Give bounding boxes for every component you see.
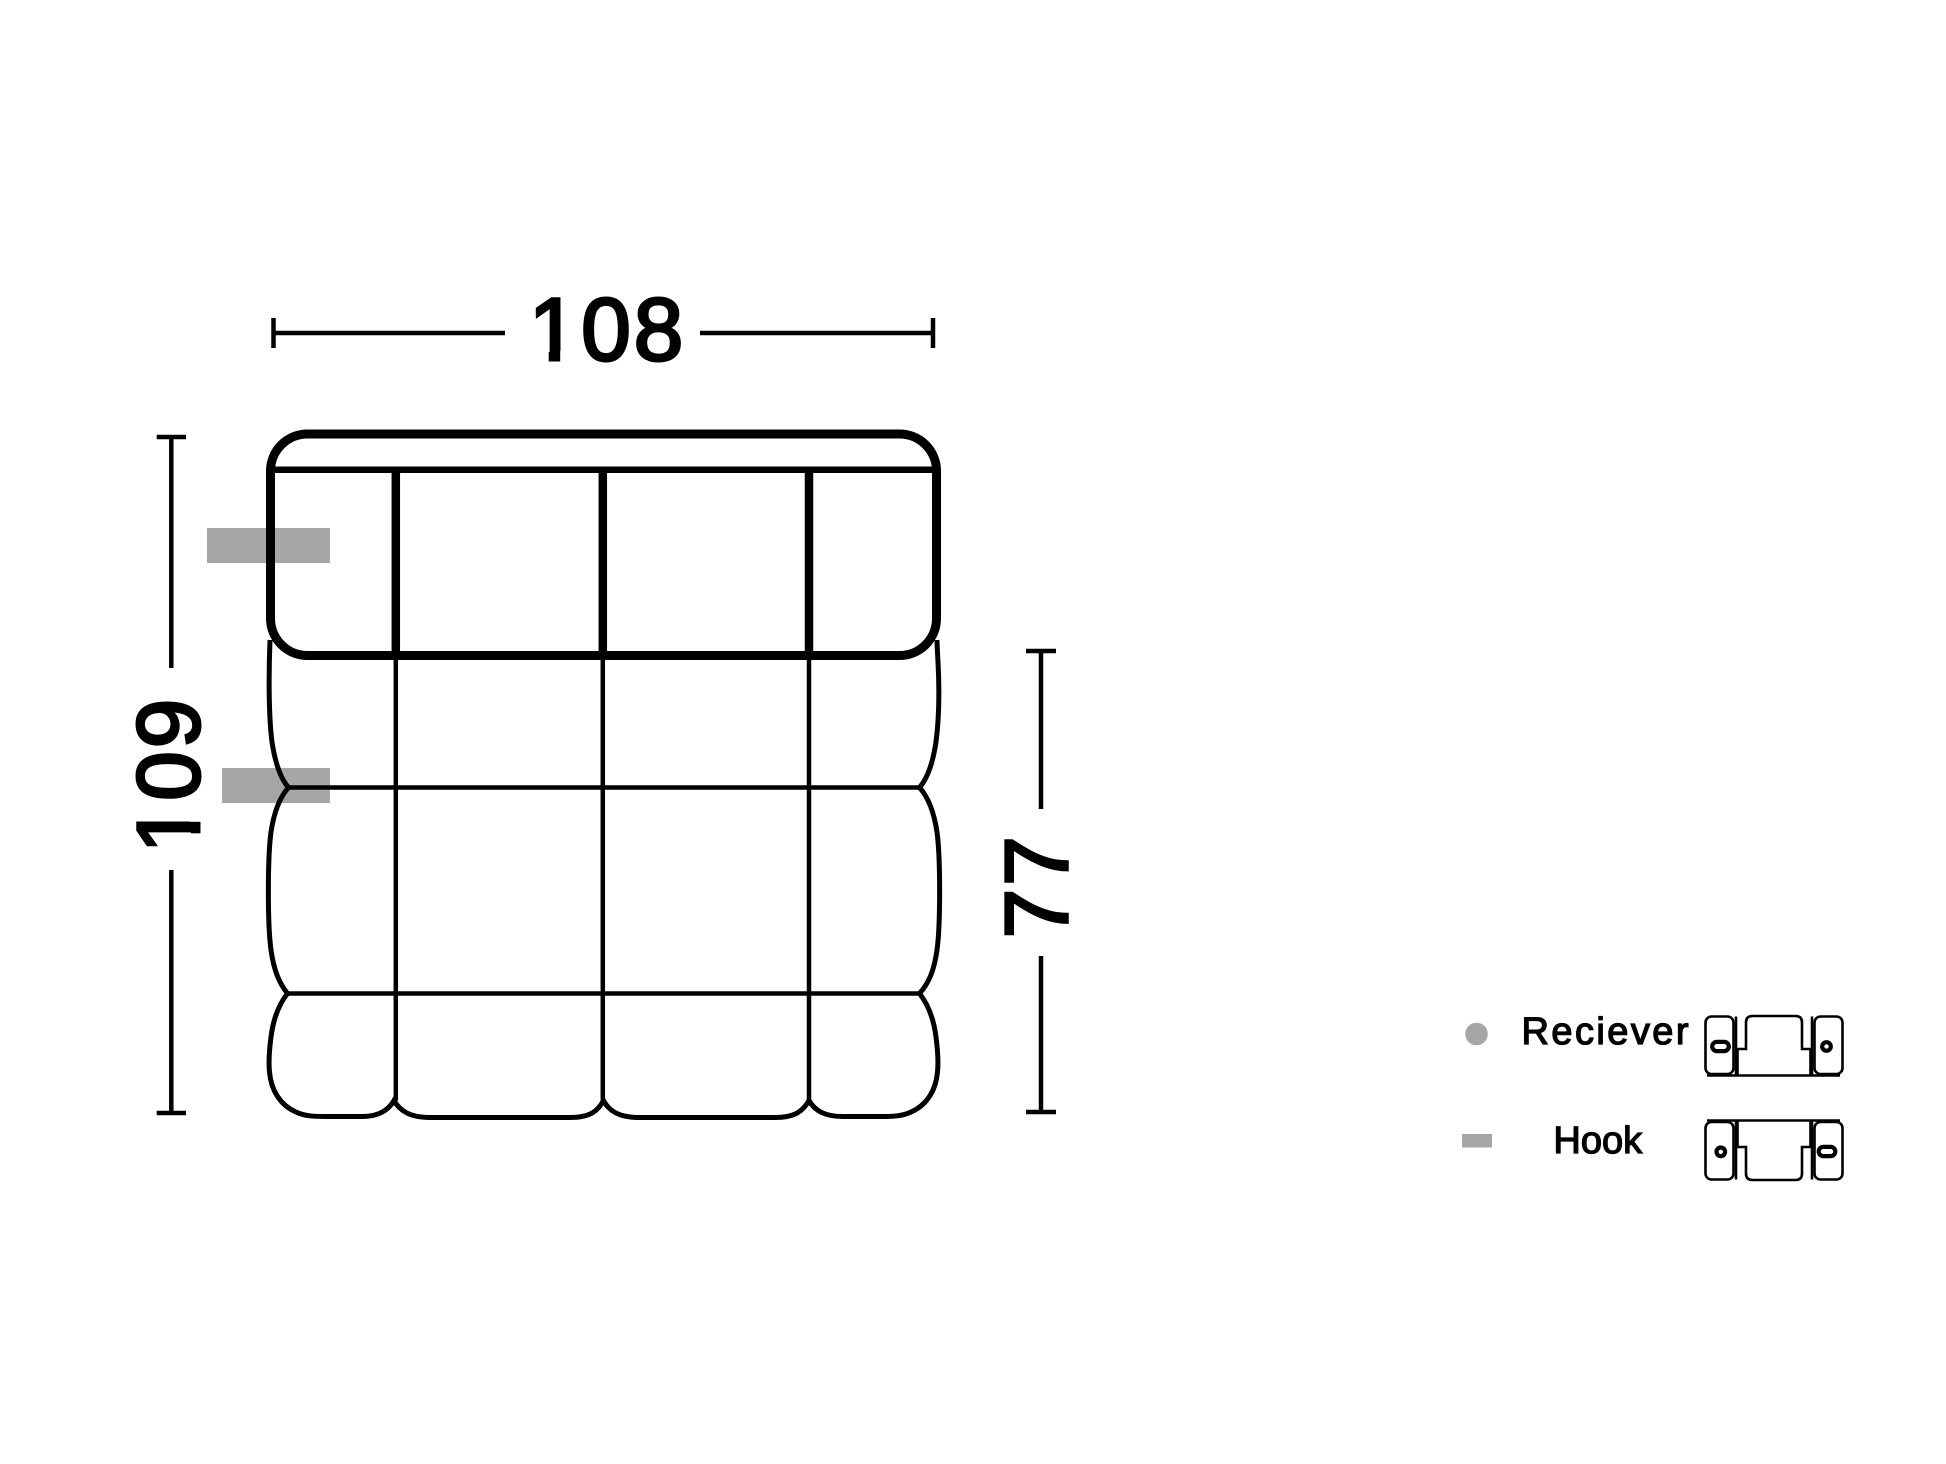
svg-text:Hook: Hook [1553,1120,1643,1162]
svg-text:77: 77 [986,833,1086,938]
svg-text:108: 108 [529,279,687,379]
svg-text:109: 109 [118,696,218,854]
